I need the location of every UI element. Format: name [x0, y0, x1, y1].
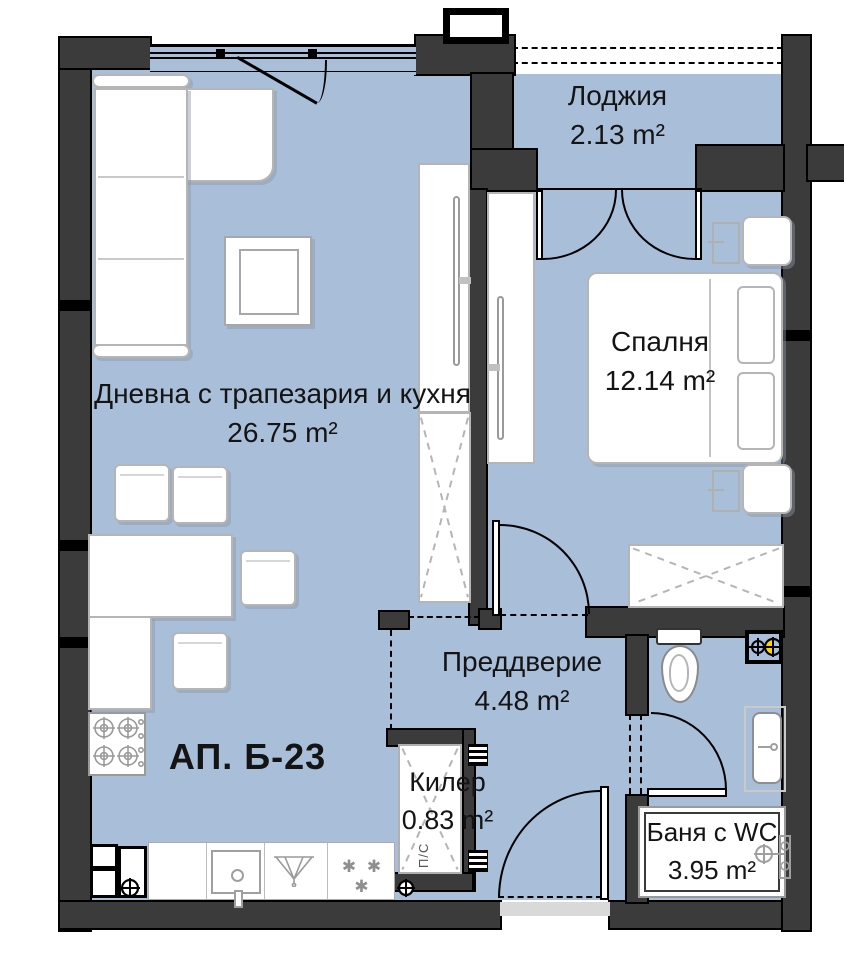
room-area-living: 26.75 m² [90, 413, 475, 452]
room-label-loggia: Лоджия 2.13 m² [515, 76, 720, 154]
room-label-bedroom: Спалня 12.14 m² [565, 322, 755, 400]
hall-boundary-dash [408, 616, 480, 618]
sofa-cushion-line [98, 258, 184, 260]
living-window [150, 44, 416, 75]
room-area-bath: 3.95 m² [668, 852, 756, 890]
room-area-hall: 4.48 m² [412, 681, 632, 720]
entrance-door-leaf [600, 786, 609, 900]
wall-loggia-stub-left [472, 150, 536, 190]
counter-divider [327, 843, 328, 899]
bath-sink [752, 712, 782, 784]
stove-burners-icon [90, 714, 144, 774]
entrance-threshold [500, 902, 610, 916]
room-label-hall: Преддверие 4.48 m² [412, 642, 632, 720]
floor-plan: ✱ ✱ ✱ П/С [0, 0, 844, 954]
entrance-door-opening [498, 896, 602, 898]
bath-door-opening [640, 714, 642, 794]
vent-shaft [745, 630, 783, 664]
room-area-bedroom: 12.14 m² [565, 361, 755, 400]
loggia-door-leaf-left [536, 190, 543, 260]
room-area-closet: 0.83 m² [385, 802, 510, 840]
room-name-living: Дневна с трапезария и кухня [94, 378, 471, 409]
wall-stub-right [808, 146, 844, 180]
vent-icon [396, 878, 416, 898]
bedroom-door-opening [500, 614, 588, 616]
wall-joint [60, 637, 90, 648]
railing-line [512, 62, 783, 64]
bath-door-leaf [647, 788, 727, 797]
counter-divider [206, 843, 207, 899]
roof-shaft-box [443, 8, 509, 44]
fridge-bottom [90, 868, 118, 898]
vent-icon [119, 877, 141, 899]
kitchen-sink [211, 850, 261, 894]
dining-table-extension [88, 616, 152, 710]
toilet-tank [656, 628, 702, 645]
dining-chair [172, 632, 228, 690]
extractor-hood-icon [271, 851, 317, 887]
closet-door-hinge [468, 744, 488, 766]
lamp-arrow [708, 241, 724, 243]
wall-joint [783, 330, 810, 341]
toilet-bowl-inner [669, 654, 689, 692]
room-name-loggia: Лоджия [568, 80, 667, 111]
hall-boundary-dash [390, 630, 392, 730]
dining-chair [240, 550, 296, 606]
tv-bedroom-mount [488, 364, 500, 371]
window-mullion [216, 49, 225, 58]
sink-tap [234, 890, 243, 908]
counter-divider [264, 843, 265, 899]
wall-hall-corner [380, 612, 408, 628]
fridge-top [90, 844, 118, 869]
stove [88, 712, 146, 776]
kitchen-counter: ✱ ✱ ✱ [148, 842, 395, 900]
room-name-bedroom: Спалня [611, 326, 709, 357]
loggia-door-leaf-right [695, 190, 702, 260]
wall-joint [60, 300, 90, 311]
window-sill-line [150, 71, 416, 72]
coffee-table [224, 236, 312, 326]
wall-joint [783, 586, 810, 597]
sofa-armrest [92, 344, 190, 358]
sofa-armrest [92, 74, 190, 88]
room-name-closet: Килер [409, 767, 486, 797]
wall-mid-column [472, 74, 512, 154]
room-label-living: Дневна с трапезария и кухня 26.75 m² [90, 374, 475, 452]
sofa-seats [94, 88, 188, 346]
dining-chair [114, 464, 170, 522]
wall-bottom [610, 902, 810, 928]
cooktop-symbol: ✱ ✱ ✱ [331, 857, 395, 897]
tv-cabinet-bedroom [487, 192, 535, 464]
window-glazing-line [150, 57, 416, 59]
dining-table [88, 534, 233, 618]
wall-lamp [712, 222, 740, 264]
window-mullion [308, 49, 317, 58]
wardrobe-x-icon [630, 546, 782, 606]
bedroom-door-leaf [492, 520, 500, 616]
sink-drain [231, 869, 244, 882]
nightstand [742, 216, 792, 266]
dining-chair [172, 466, 228, 524]
sink-faucet-line [758, 746, 770, 748]
window-glazing-line [150, 52, 416, 54]
closet-door-hinge [468, 850, 488, 872]
coffee-table-top [239, 249, 299, 315]
apartment-id-label: АП. Б-23 [140, 736, 355, 778]
vent-highlighted-icon [762, 636, 784, 658]
tv-living-mount [459, 277, 471, 284]
room-label-closet: Килер 0.83 m² [385, 764, 510, 840]
room-name-hall: Преддверие [442, 646, 602, 677]
railing-line [512, 47, 783, 49]
wardrobe-bedroom [628, 544, 784, 608]
loggia-railing [512, 40, 783, 74]
sofa-cushion-line [98, 176, 184, 178]
wall-closet-top [388, 730, 472, 745]
shower-mixer-icon [752, 834, 792, 880]
wall-top-left [60, 38, 150, 68]
lamp-arrow [708, 489, 724, 491]
wall-bottom [60, 902, 500, 928]
bath-door-opening [629, 714, 631, 794]
wall-lamp [712, 470, 740, 512]
wall-left [60, 38, 90, 930]
wall-joint [60, 540, 90, 551]
sink-faucet [770, 743, 778, 751]
room-area-loggia: 2.13 m² [515, 115, 720, 154]
nightstand [742, 464, 792, 514]
